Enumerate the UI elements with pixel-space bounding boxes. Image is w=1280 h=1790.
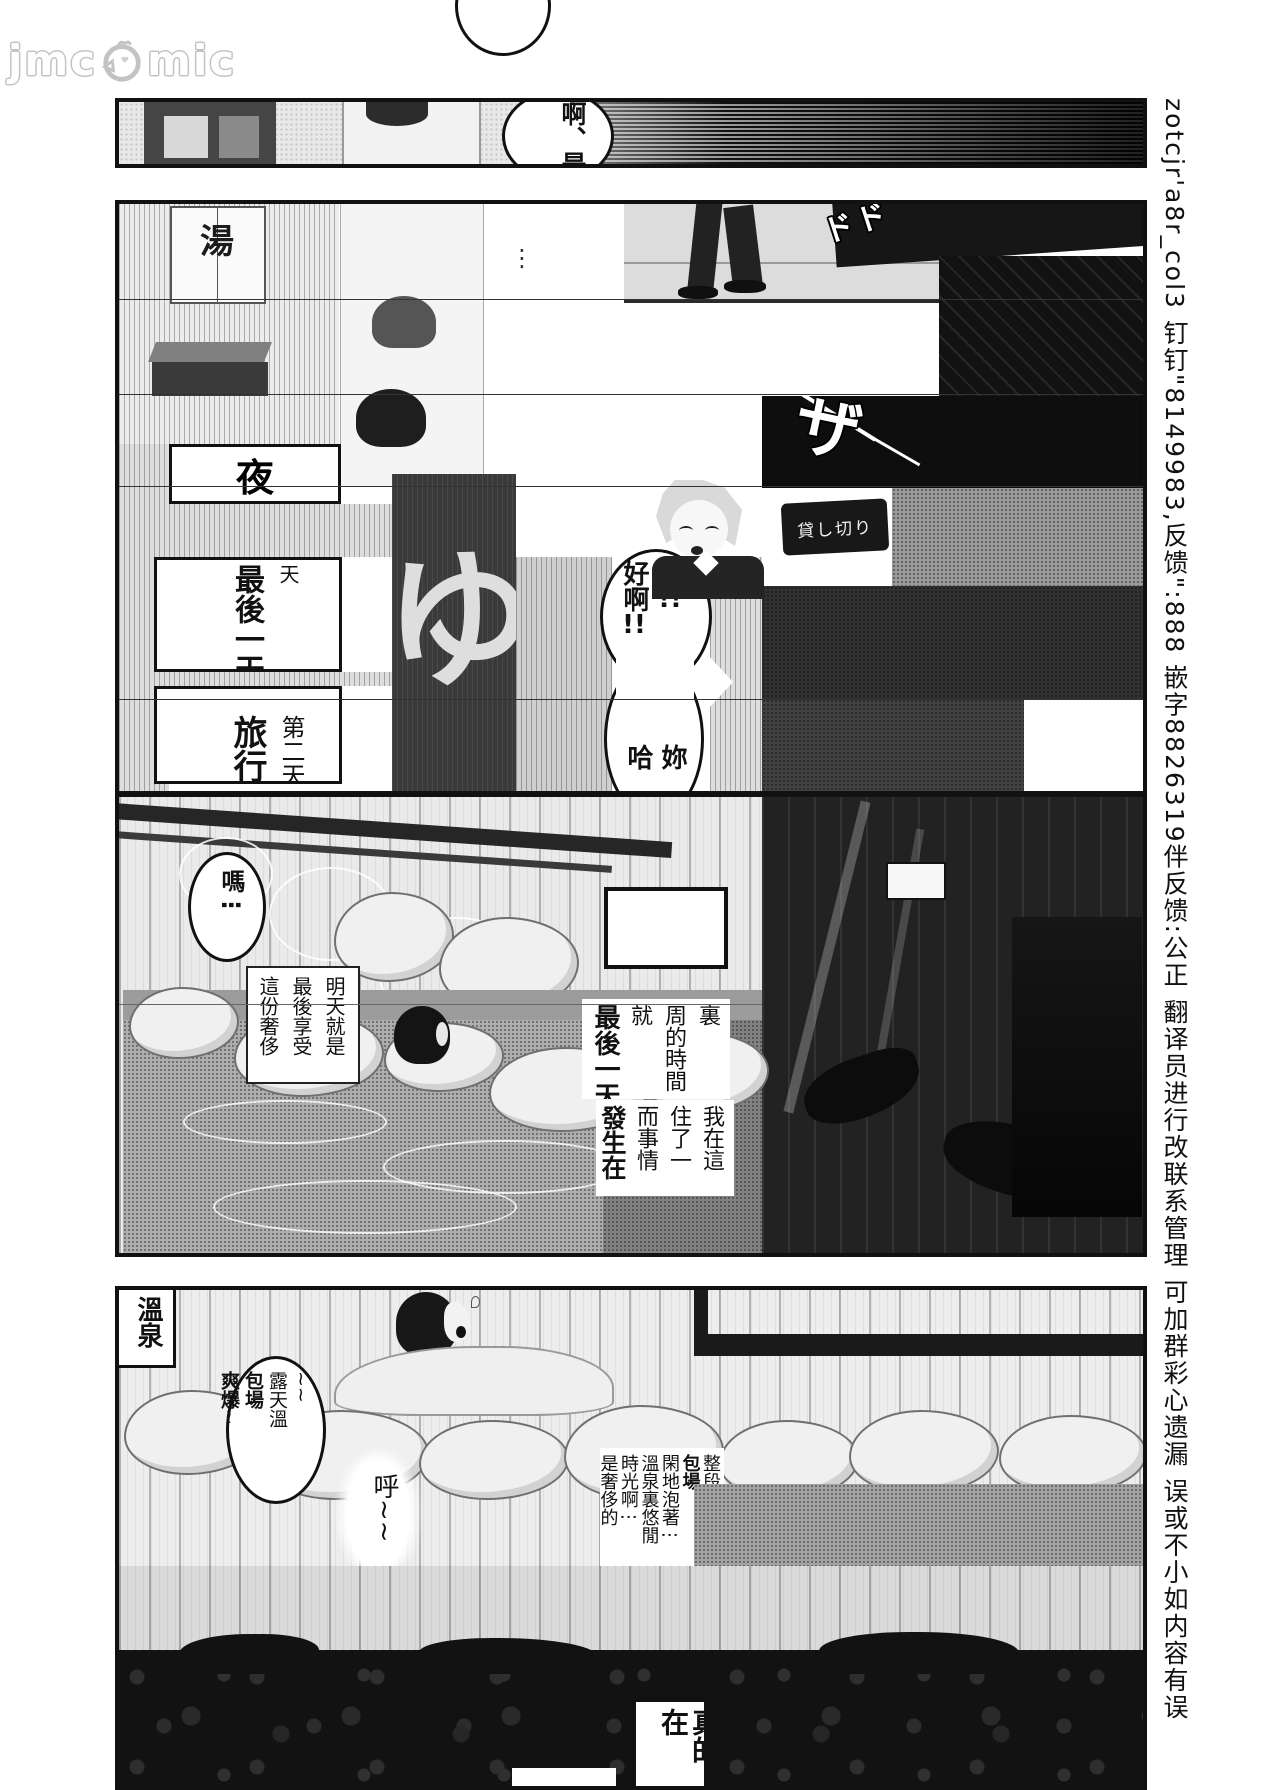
bamboo-fence-dark — [762, 797, 1147, 1257]
stay-col-4: 發生在 — [596, 1105, 629, 1195]
bubble-ma-text: 嗎⋮ — [217, 869, 245, 917]
soaking-man-mouth — [456, 1326, 466, 1338]
stay-col-2: 住了一 — [662, 1105, 695, 1195]
caption-really-box: 真的在 — [632, 1698, 708, 1790]
bath-curtain-panel: ゆ — [392, 474, 516, 795]
caption-trip-box: 第二天 旅行 — [154, 686, 342, 784]
stay-col-3: 而事情 — [629, 1105, 662, 1195]
wall-patch-1 — [154, 504, 392, 557]
figure-back — [342, 102, 481, 168]
fence-rail — [694, 1334, 1147, 1356]
caption-stay-box: 我在這 住了一 而事情 發生在 — [596, 1100, 734, 1196]
stool-top — [148, 342, 272, 362]
tomorrow-col-1: 明天就是 — [317, 976, 350, 1080]
bubble-ni-col: 妳 — [655, 744, 689, 795]
watermark-text-right: mic — [147, 36, 236, 85]
bather-ear — [436, 1022, 448, 1046]
sigh-blob: 呼~~ — [346, 1459, 410, 1569]
speedline-shade — [544, 102, 1147, 168]
slice-line-1 — [119, 299, 1147, 300]
foliage-bump-2 — [419, 1638, 599, 1674]
reserved-sign: 貸し切り — [781, 498, 890, 555]
sweat-drop — [471, 1296, 480, 1308]
speech-bubble-ah: 啊、是 — [502, 98, 614, 168]
caption-trip-cols: 第二天 旅行 — [225, 715, 313, 784]
bottom-white-fragment — [512, 1768, 616, 1790]
caption-week-box: 裏 周的時間⋮ 就 最後一天 — [582, 999, 730, 1099]
panel-4: 溫泉 ~~ 露天溫 包場 爽爆~ 呼~~ 整段時間 包場 閑地泡著⋮ 溫泉裏悠閒… — [115, 1286, 1147, 1790]
bubble-good-col: 好啊!! — [616, 560, 652, 680]
locker-slot-light — [164, 116, 208, 158]
caption-really-text: 真的在 — [658, 1708, 708, 1790]
closed-eye-left — [679, 526, 693, 535]
fence-post — [694, 1290, 708, 1356]
week-col-1: 裏 — [690, 1004, 724, 1099]
caption-last: 最後一天 — [225, 564, 267, 672]
panel-1: 啊、是 — [115, 98, 1147, 168]
rock-row-7 — [999, 1415, 1147, 1495]
mini-empty-box — [886, 862, 946, 900]
caption-tomorrow-box: 明天就是 最後享受 這份奢侈 — [246, 966, 360, 1084]
sigh-text: 呼~~ — [366, 1473, 403, 1543]
leaf-cluster-1 — [796, 1040, 929, 1134]
slipper-right — [724, 280, 766, 293]
speech-bubble-ma: 嗎⋮ — [188, 852, 266, 962]
caption-night: 夜 — [236, 447, 274, 502]
rock-row-6 — [849, 1410, 999, 1495]
top-partial-bubble — [455, 0, 551, 56]
speech-bubble-outdoor: ~~ 露天溫 包場 爽爆~ — [226, 1356, 326, 1504]
week-col-3: 就 — [622, 1004, 656, 1099]
bubble-ah-text: 啊、是 — [557, 101, 587, 168]
slice-line-3 — [119, 486, 1147, 487]
gray-band-c — [892, 488, 1147, 586]
glitch-gap — [1024, 699, 1147, 795]
outdoor-col-2: 露天溫 — [265, 1371, 289, 1495]
foliage-bump-1 — [179, 1634, 319, 1674]
outdoor-col-3: 包場 — [241, 1371, 265, 1495]
gray-band — [694, 1484, 1147, 1566]
wall-mid — [516, 557, 612, 795]
soaking-man-shoulders — [334, 1346, 614, 1416]
panel-2: 湯 ドド ザ 貸し切り 夜 天 最後一天 第二天 旅行 — [115, 200, 1147, 795]
dark-band-f — [762, 699, 1024, 795]
slipper-left — [678, 286, 718, 299]
caption-stay-cols: 我在這 住了一 而事情 發生在 — [596, 1105, 728, 1195]
bubble-ni-ha-text: 妳 哈 — [621, 744, 689, 795]
caption-day2: 第二天 — [269, 715, 313, 784]
caption-week-cols: 裏 周的時間⋮ 就 最後一天 — [588, 1004, 724, 1099]
reserved-sign-text: 貸し切り — [796, 513, 873, 542]
bubble-ha2-col: 哈 — [621, 744, 655, 795]
watermark-text-left: jmc — [8, 36, 97, 85]
caption-tomorrow-cols: 明天就是 最後享受 這份奢侈 — [251, 976, 350, 1080]
week-col-4: 最後一天 — [588, 1004, 622, 1099]
outdoor-col-1: ~~ — [289, 1371, 313, 1495]
caption-day: 天 — [267, 564, 309, 672]
fence-shadow — [1012, 917, 1142, 1217]
scanlation-credit-text: zotcjr'a8r_col3 钉钉"8149983,反馈":888 嵌字882… — [1150, 98, 1196, 1790]
empty-caption-box — [604, 887, 728, 969]
tomorrow-col-3: 這份奢侈 — [251, 976, 284, 1080]
jmcomic-watermark: jmc mic — [8, 36, 236, 85]
outdoor-col-4: 爽爆~ — [217, 1371, 241, 1495]
ripple-1 — [183, 1100, 387, 1144]
bath-mark-yu: ゆ — [392, 500, 516, 717]
caption-lastday-cols: 天 最後一天 — [225, 564, 309, 672]
wall-patch-2 — [154, 672, 392, 686]
caption-lastday-box: 天 最後一天 — [154, 557, 342, 672]
man-hair-upper — [372, 296, 436, 348]
bubble-outdoor-cols: ~~ 露天溫 包場 爽爆~ — [217, 1371, 313, 1495]
locker-slot-dark — [219, 116, 259, 158]
stay-col-1: 我在這 — [695, 1105, 728, 1195]
noren-curtain: 湯 — [170, 206, 266, 304]
locker-shelf — [144, 102, 276, 168]
exclaim-2: !! — [619, 612, 649, 638]
noren-sign-yu: 湯 — [200, 214, 234, 263]
bird-logo-icon — [99, 38, 145, 84]
closed-eye-right — [705, 526, 719, 535]
figure-hair — [366, 102, 428, 126]
corner-caption-text: 溫泉 — [133, 1296, 163, 1348]
slice-line-5 — [119, 1004, 762, 1005]
dark-band-a — [939, 256, 1147, 396]
foliage-bump-3 — [819, 1632, 1019, 1674]
tomorrow-col-2: 最後享受 — [284, 976, 317, 1080]
manga-page: { "watermark": { "left": "jmc", "right":… — [0, 0, 1280, 1790]
panel-3: 嗎⋮ 明天就是 最後享受 這份奢侈 裏 周的時間⋮ 就 最後一天 我在這 住了一… — [115, 793, 1147, 1257]
caption-trip: 旅行 — [225, 715, 269, 784]
man-hair-lower — [356, 389, 426, 447]
speedline-band — [544, 102, 1147, 168]
slice-line-4 — [119, 699, 1147, 700]
slice-line-2 — [119, 394, 1147, 395]
dark-band-d — [762, 586, 1147, 699]
caption-night-box: 夜 — [169, 444, 341, 504]
corner-caption-box: 溫泉 — [119, 1290, 176, 1368]
stool-body — [152, 362, 268, 396]
mini-dots: ⋮ — [510, 244, 540, 304]
ripple-3 — [213, 1180, 517, 1234]
week-col-2: 周的時間⋮ — [656, 1004, 690, 1099]
rock-row-3 — [419, 1420, 569, 1500]
